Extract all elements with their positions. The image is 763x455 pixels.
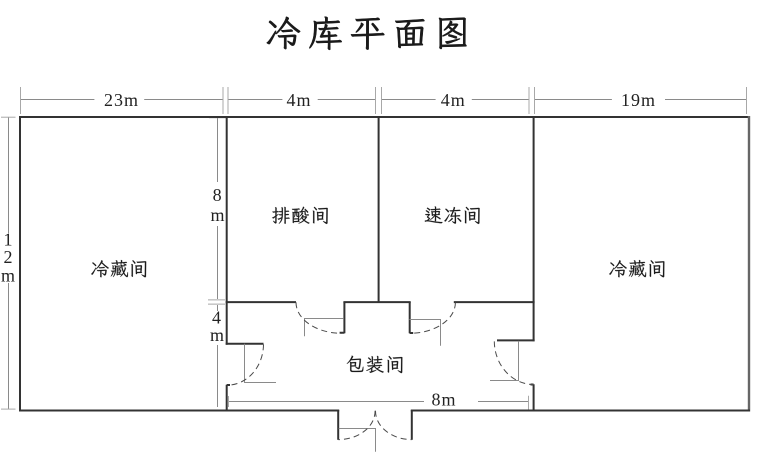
svg-text:m: m bbox=[1, 266, 16, 286]
svg-text:2: 2 bbox=[4, 247, 14, 267]
svg-text:23m: 23m bbox=[104, 90, 139, 110]
svg-text:19m: 19m bbox=[621, 90, 656, 110]
svg-text:8: 8 bbox=[213, 185, 223, 205]
svg-text:4m: 4m bbox=[286, 90, 311, 110]
svg-text:8m: 8m bbox=[431, 389, 456, 409]
svg-text:m: m bbox=[210, 205, 225, 225]
svg-text:m: m bbox=[210, 325, 225, 345]
svg-text:4m: 4m bbox=[441, 90, 466, 110]
